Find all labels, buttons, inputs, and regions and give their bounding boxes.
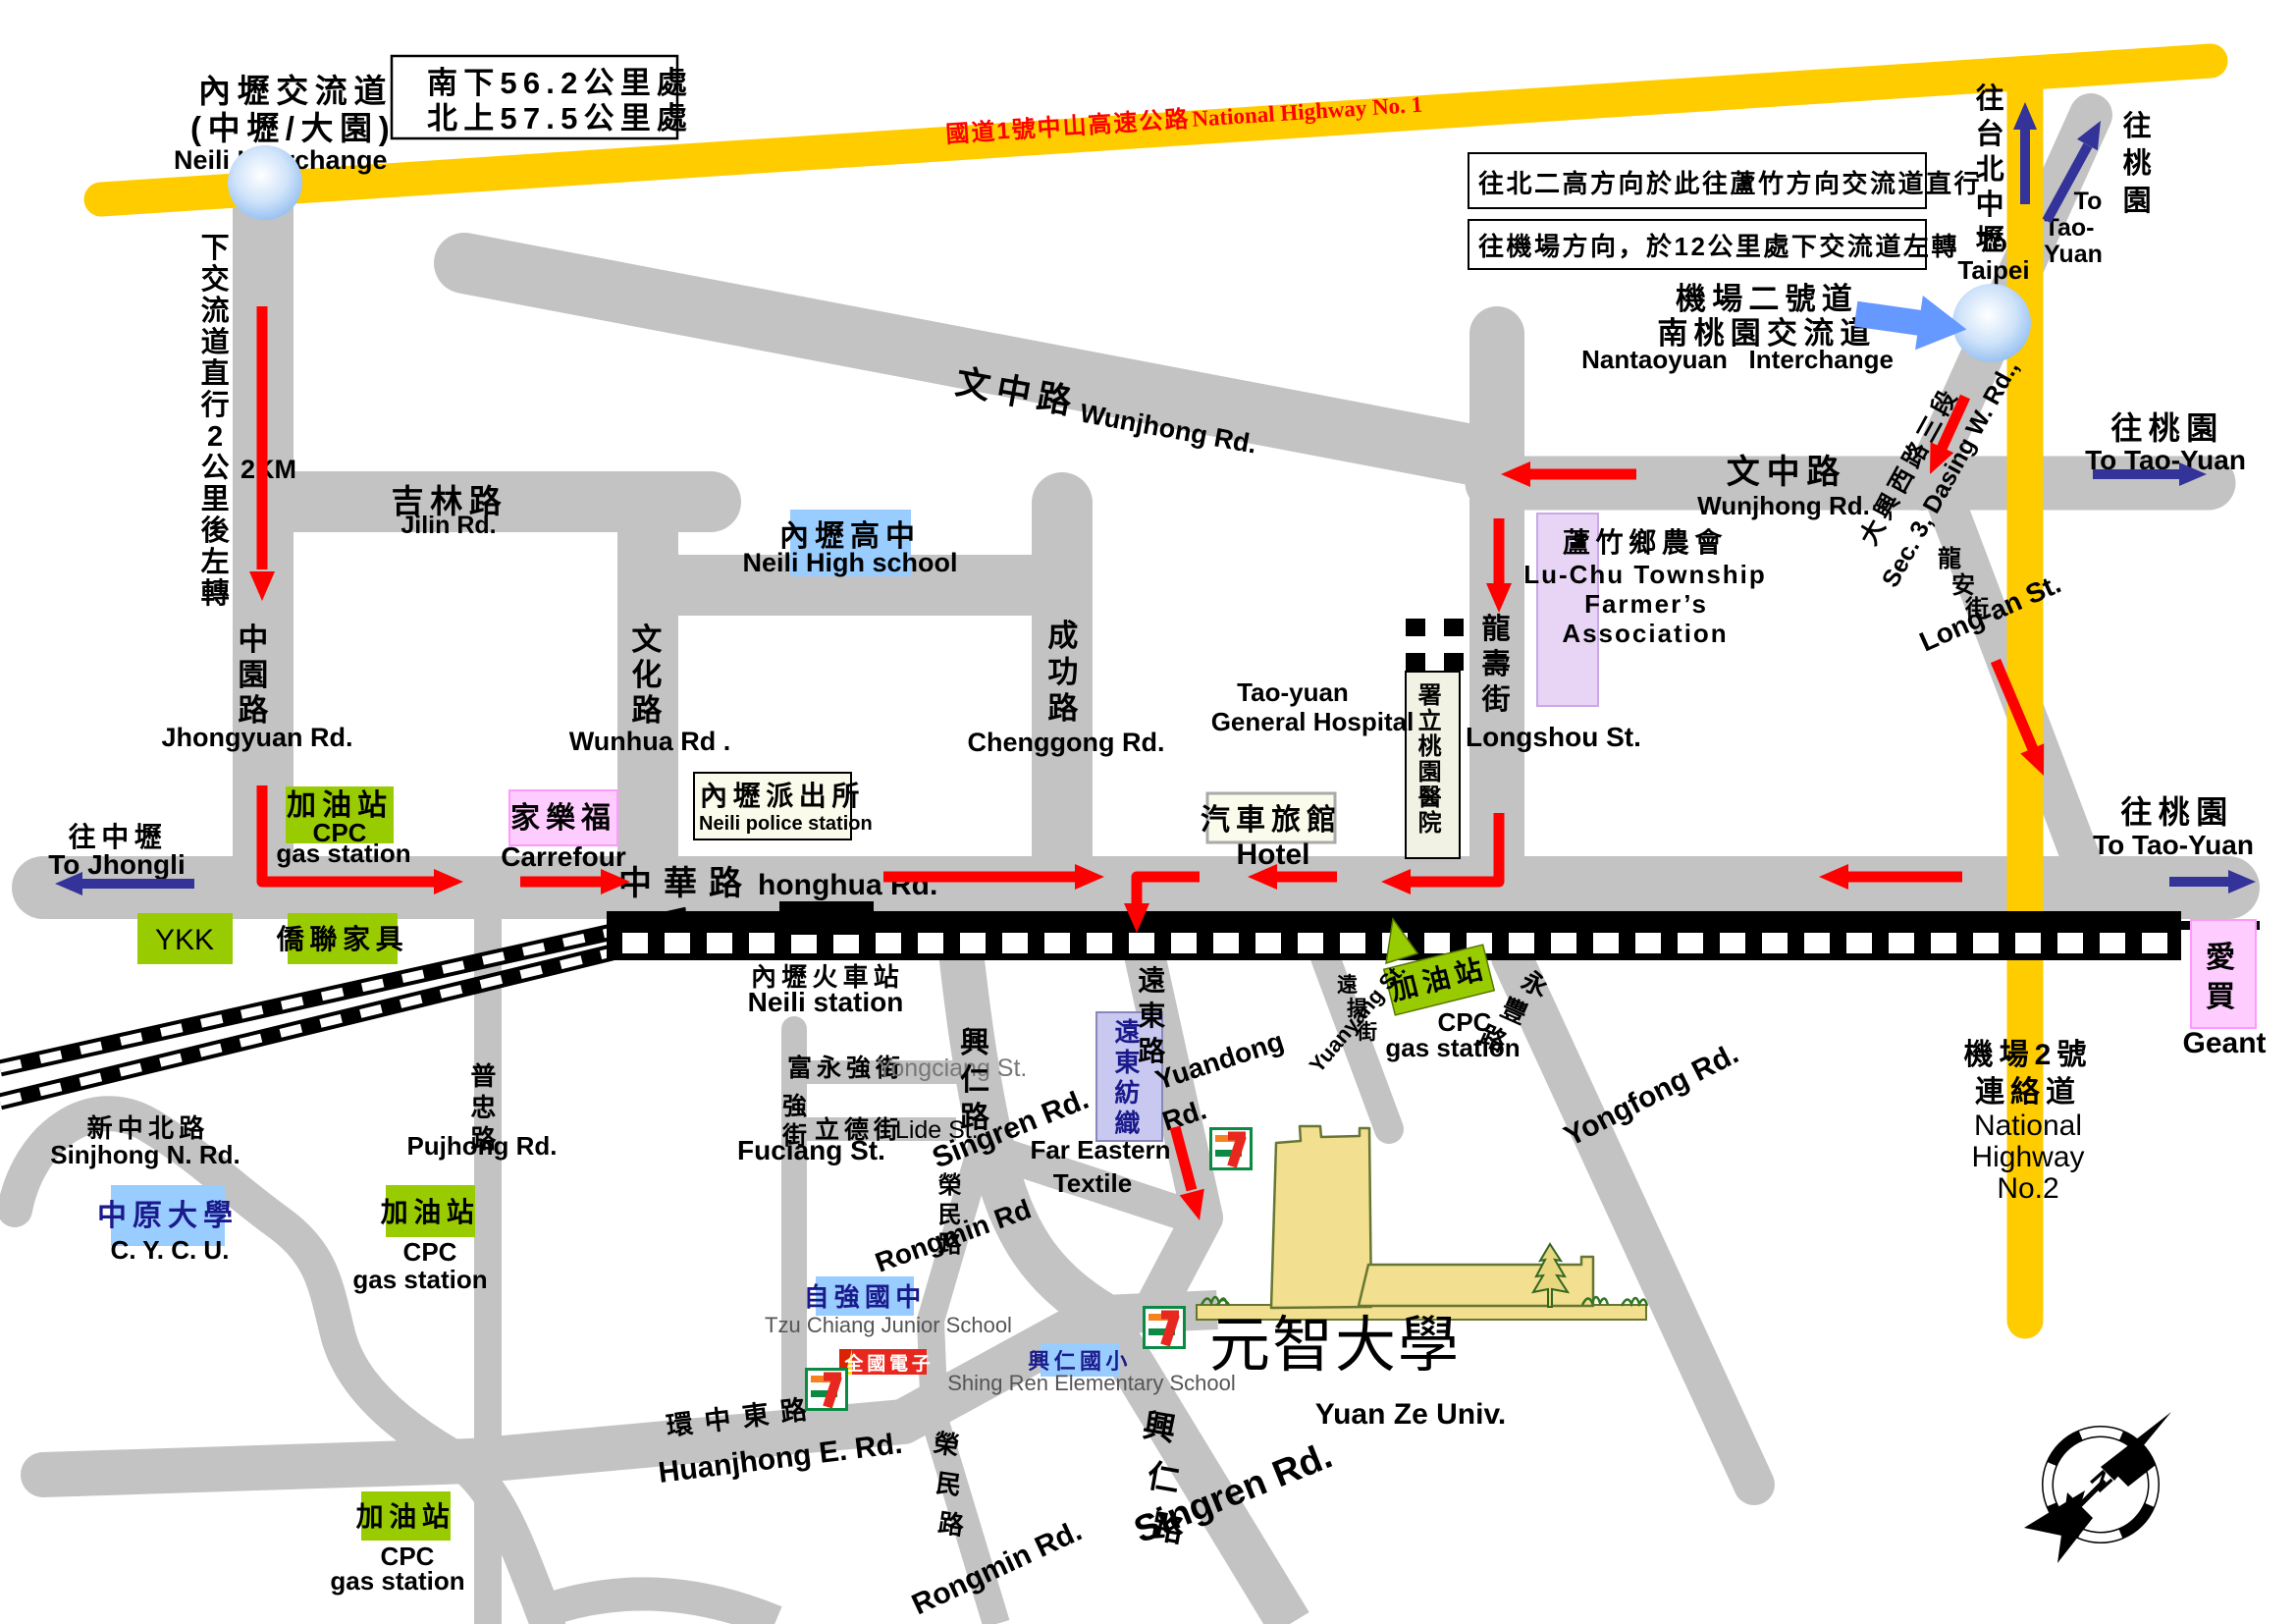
svg-text:中華路honghua Rd.: 中華路honghua Rd. xyxy=(618,865,937,902)
svg-text:往中壢: 往中壢 xyxy=(69,821,168,852)
svg-text:內壢交流道: 內壢交流道 xyxy=(198,73,393,109)
svg-text:C. Y. C. U.: C. Y. C. U. xyxy=(111,1235,230,1265)
svg-text:2KM: 2KM xyxy=(240,455,296,484)
svg-text:龍壽街: 龍壽街 xyxy=(1481,612,1517,716)
svg-text:Association: Association xyxy=(1562,619,1728,648)
svg-text:僑聯家具: 僑聯家具 xyxy=(276,923,408,954)
svg-text:Sinjhong N. Rd.: Sinjhong N. Rd. xyxy=(50,1140,240,1169)
svg-text:To: To xyxy=(2074,188,2103,215)
svg-text:Neili station: Neili station xyxy=(748,987,904,1017)
svg-text:家樂福: 家樂福 xyxy=(510,802,616,835)
svg-text:自強國中: 自強國中 xyxy=(804,1282,927,1312)
svg-text:gas station: gas station xyxy=(276,839,410,868)
svg-text:新中北路: 新中北路 xyxy=(87,1113,210,1143)
svg-text:往北二高方向於此往蘆竹方向交流道直行: 往北二高方向於此往蘆竹方向交流道直行 xyxy=(1478,169,1982,198)
svg-text:Taipei: Taipei xyxy=(1957,255,2029,285)
svg-text:Wunhua Rd .: Wunhua Rd . xyxy=(569,727,730,756)
svg-text:Textile: Textile xyxy=(1053,1168,1132,1198)
svg-text:連絡道: 連絡道 xyxy=(1975,1076,2081,1109)
svg-text:To Jhongli: To Jhongli xyxy=(48,849,185,880)
svg-text:遠東路: 遠東路 xyxy=(1138,965,1171,1066)
svg-text:Farmer’s: Farmer’s xyxy=(1584,589,1708,619)
svg-text:往機場方向，於12公里處下交流道左轉: 往機場方向，於12公里處下交流道左轉 xyxy=(1478,232,1959,261)
svg-text:Longshou St.: Longshou St. xyxy=(1466,722,1641,752)
svg-text:Tao-yuan: Tao-yuan xyxy=(1237,677,1349,707)
svg-text:Nantaoyuan Interchange: Nantaoyuan Interchange xyxy=(1581,345,1894,374)
svg-text:內壢派出所: 內壢派出所 xyxy=(700,781,865,811)
svg-text:To: To xyxy=(1978,228,2007,257)
svg-text:成功路: 成功路 xyxy=(1047,619,1084,726)
svg-text:Far Eastern: Far Eastern xyxy=(1030,1135,1170,1164)
svg-text:興仁路: 興仁路 xyxy=(960,1027,995,1134)
svg-text:全國電子: 全國電子 xyxy=(843,1352,934,1375)
svg-text:中原大學: 中原大學 xyxy=(97,1200,239,1232)
svg-text:加油站: 加油站 xyxy=(381,1197,480,1227)
svg-text:Fuciang St.: Fuciang St. xyxy=(737,1135,885,1165)
svg-text:National: National xyxy=(1974,1110,2082,1142)
svg-text:Jhongyuan Rd.: Jhongyuan Rd. xyxy=(162,723,353,752)
svg-text:Jilin Rd.: Jilin Rd. xyxy=(400,512,496,539)
svg-text:Geant: Geant xyxy=(2182,1027,2266,1059)
svg-text:往桃園: 往桃園 xyxy=(2123,109,2158,217)
svg-text:Pujhong Rd.: Pujhong Rd. xyxy=(406,1131,557,1161)
svg-text:General Hospital: General Hospital xyxy=(1211,707,1415,736)
svg-text:Neili High school: Neili High school xyxy=(742,548,957,577)
svg-text:CPC: CPC xyxy=(403,1237,457,1267)
svg-text:機場2號: 機場2號 xyxy=(1964,1039,2093,1071)
svg-text:To Tao-Yuan: To Tao-Yuan xyxy=(2093,830,2254,860)
svg-text:署立桃園醫院: 署立桃園醫院 xyxy=(1417,682,1447,837)
svg-text:Carrefour: Carrefour xyxy=(501,841,626,872)
svg-text:Wunjhong Rd.: Wunjhong Rd. xyxy=(1697,491,1870,520)
svg-text:Yuan Ze Univ.: Yuan Ze Univ. xyxy=(1315,1398,1507,1431)
svg-text:gas station: gas station xyxy=(352,1265,487,1294)
svg-text:(中壢/大園): (中壢/大園) xyxy=(190,110,396,146)
svg-text:往桃園: 往桃園 xyxy=(2120,794,2233,830)
svg-text:Yongciang St.: Yongciang St. xyxy=(877,1055,1027,1082)
svg-text:Neili police station: Neili police station xyxy=(699,813,873,835)
svg-text:中園路: 中園路 xyxy=(238,623,274,728)
svg-text:Chenggong Rd.: Chenggong Rd. xyxy=(968,728,1165,757)
svg-text:Lu-Chu Township: Lu-Chu Township xyxy=(1523,560,1767,589)
svg-text:南下56.2公里處: 南下56.2公里處 xyxy=(427,66,693,100)
svg-text:蘆竹鄉農會: 蘆竹鄉農會 xyxy=(1563,526,1728,558)
svg-text:北上57.5公里處: 北上57.5公里處 xyxy=(427,101,693,135)
svg-text:加油站: 加油站 xyxy=(356,1501,455,1532)
svg-text:往桃園: 往桃園 xyxy=(2110,410,2223,446)
svg-text:文化路: 文化路 xyxy=(631,623,667,728)
svg-text:汽車旅館: 汽車旅館 xyxy=(1201,803,1342,837)
svg-text:gas station: gas station xyxy=(330,1566,464,1596)
svg-text:Shing Ren Elementary School: Shing Ren Elementary School xyxy=(947,1371,1236,1395)
svg-text:Highway: Highway xyxy=(1971,1141,2084,1173)
svg-text:元智大學: 元智大學 xyxy=(1209,1312,1461,1380)
svg-text:文中路: 文中路 xyxy=(1727,454,1846,491)
svg-text:YKK: YKK xyxy=(155,924,214,956)
svg-text:Tzu Chiang Junior School: Tzu Chiang Junior School xyxy=(765,1313,1012,1337)
svg-text:Yuan: Yuan xyxy=(2044,241,2103,268)
svg-text:No.2: No.2 xyxy=(1997,1172,2058,1205)
svg-text:機場二號道: 機場二號道 xyxy=(1676,282,1858,316)
